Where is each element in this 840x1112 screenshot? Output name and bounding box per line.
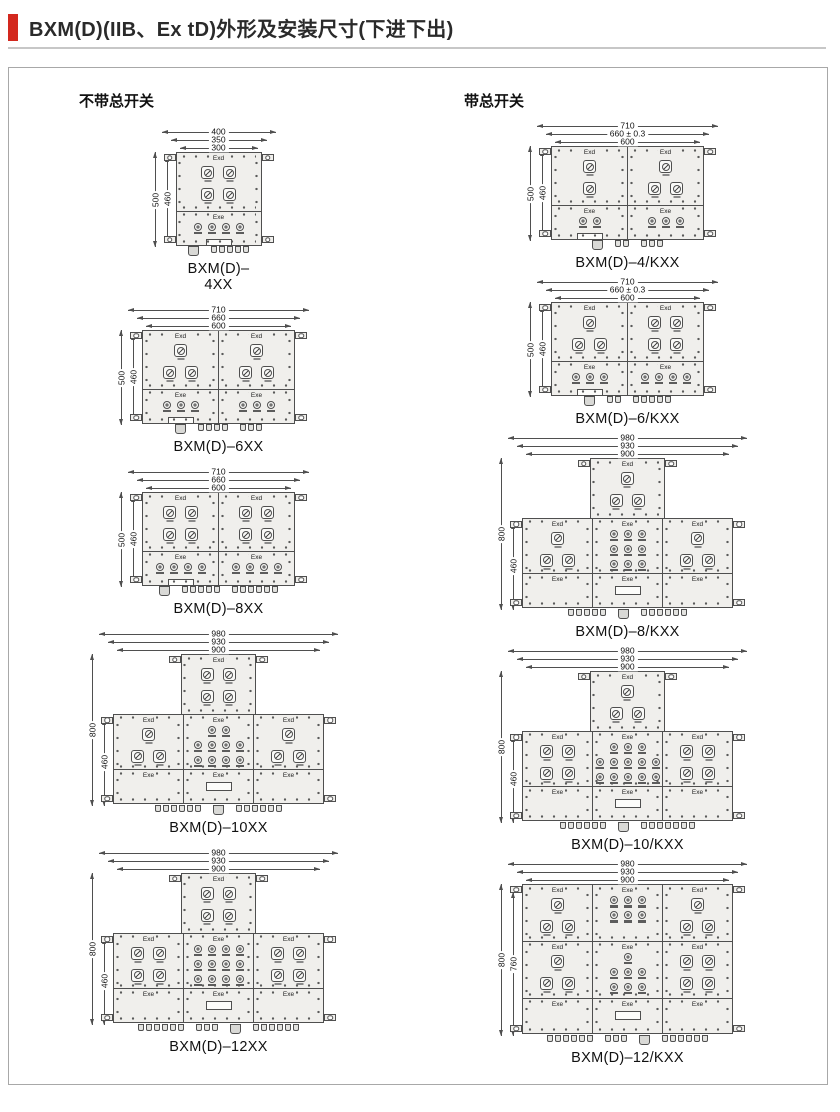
pushbutton-icon [596,758,604,766]
enclosure-drawing: ExdExdExeExdExeExeExe [522,458,733,610]
pushbutton-icon [194,975,202,983]
cable-gland-icon [261,1024,267,1031]
rotary-switch-icon [185,506,198,519]
dim-arrow-up-icon [528,146,532,152]
pushbutton-icon [208,223,216,231]
cable-gland-icon [154,1024,160,1031]
dim-arrow-left-icon [526,452,532,456]
rotary-switch-icon [680,745,693,758]
rotary-switch-icon [562,920,575,933]
dim-arrow-left-icon [99,632,105,636]
pushbutton-icon [610,530,618,538]
dimension-value: 800 [497,951,506,969]
enclosure-drawing: ExdExdExeExe [551,146,704,241]
dimension-line-horizontal: 600 [555,294,700,302]
dimension-value: 900 [617,662,637,671]
cable-gland-icon [198,586,204,593]
rotary-switch-icon [163,366,176,379]
cable-gland-icon [198,424,204,431]
flameproof-panel: Exd [522,518,593,574]
rotary-switch-icon [163,528,176,541]
dim-arrow-left-icon [128,308,134,312]
dimension-value: 500 [526,184,535,202]
panel-label: Exe [690,788,705,797]
dim-arrow-right-icon [712,280,718,284]
dimension-lines-top: 980930900 [507,860,748,884]
cable-gland-icon [214,424,220,431]
dim-arrow-left-icon [555,140,561,144]
dimension-value: 800 [497,525,506,543]
dim-arrow-left-icon [508,862,514,866]
figure: 710660600500460ExdExdExeExeBXM(D)–6XX [117,306,310,455]
panel-label: Exe [550,788,565,797]
cable-gland-icon [253,1024,259,1031]
mounting-ear [164,154,176,161]
pushbutton-icon [239,401,247,409]
pushbutton-icon [638,911,646,919]
dimension-value: 500 [117,368,126,386]
rotary-switch-icon [271,969,284,982]
pushbutton-icon [610,983,618,991]
cable-gland-icon [178,1024,184,1031]
figure-caption: BXM(D)–12XX [113,1039,324,1055]
rotary-switch-icon [223,887,236,900]
pushbutton-icon [177,401,185,409]
nameplate [206,782,232,791]
figure: 400350300500460ExdExeBXM(D)–4XX [151,128,277,293]
dim-arrow-right-icon [723,878,729,882]
dimension-lines-left: 500460 [117,492,139,587]
dim-arrow-left-icon [146,486,152,490]
column-with-main-switch: 带总开关 710660 ± 0.3600500460ExdExdExeExeBX… [418,68,827,1084]
main-cable-gland-icon [230,1024,241,1034]
dim-arrow-right-icon [314,867,320,871]
cable-glands-row [584,396,671,406]
rotary-switch-icon [670,316,683,329]
pushbutton-icon [246,563,254,571]
cable-gland-icon [171,805,177,812]
cable-gland-icon [163,805,169,812]
rotary-switch-icon [201,690,214,703]
dim-arrow-right-icon [294,316,300,320]
dim-arrow-right-icon [732,870,738,874]
flameproof-panel: Exd [662,518,733,574]
pushbutton-icon [194,756,202,764]
cable-gland-icon [248,424,254,431]
dimension-value: 460 [538,184,547,202]
cable-glands-row [188,246,249,256]
pushbutton-icon [198,563,206,571]
pushbutton-icon [638,545,646,553]
dim-arrow-left-icon [108,640,114,644]
cable-glands-row [155,805,282,815]
rotary-switch-icon [702,920,715,933]
dimension-lines-left: 800460 [88,873,110,1025]
mounting-ear [130,414,142,421]
pushbutton-icon [163,401,171,409]
pushbutton-icon [596,773,604,781]
cable-gland-icon [236,805,242,812]
cable-gland-icon [623,240,629,247]
mounting-ear [295,576,307,583]
mounting-ear [704,304,716,311]
cable-gland-icon [576,609,582,616]
cable-gland-icon [662,1035,668,1042]
pushbutton-icon [624,983,632,991]
dim-arrow-down-icon [528,235,532,241]
pushbutton-icon [274,563,282,571]
cable-glands-row [547,1035,708,1045]
mounting-ear [733,886,745,893]
flameproof-panel: Exd [590,671,666,732]
flameproof-panel: Exd [627,302,704,362]
dim-arrow-right-icon [694,296,700,300]
panel-label: Exd [141,935,156,944]
cable-gland-icon [670,1035,676,1042]
rotary-switch-icon [239,506,252,519]
dimension-line-horizontal: 900 [526,450,729,458]
cable-gland-icon [214,586,220,593]
nameplate [615,799,641,808]
panel-label: Exe [211,935,226,944]
panel-label: Exe [690,575,705,584]
cable-gland-icon [264,586,270,593]
dim-arrow-up-icon [499,458,503,464]
cable-gland-icon [665,822,671,829]
pushbutton-icon [222,975,230,983]
pushbutton-icon [236,945,244,953]
pushbutton-icon [610,773,618,781]
main-cable-gland-icon [584,396,595,406]
pushbutton-icon [579,217,587,225]
cable-gland-icon [649,609,655,616]
flameproof-panel: Exd [181,654,257,715]
rotary-switch-icon [261,528,274,541]
dim-arrow-down-icon [119,581,123,587]
figure: 980930900800460ExdExdExeExdExeExeExeBXM(… [88,630,339,836]
dimension-line-vertical: 460 [129,334,139,421]
flameproof-panel: Exd [253,933,324,989]
mounting-ear [324,1014,336,1021]
rotary-switch-icon [131,969,144,982]
rotary-switch-icon [562,977,575,990]
flameproof-panel: Exd [218,492,295,552]
rotary-switch-icon [680,920,693,933]
flameproof-panel: Exd [627,146,704,206]
pushbutton-icon [638,530,646,538]
rotary-switch-icon [702,955,715,968]
dimension-line-vertical: 500 [117,492,127,587]
pushbutton-icon [683,373,691,381]
mounting-ear [262,154,274,161]
panel-label: Exd [620,673,635,682]
figure-caption: BXM(D)–10/KXX [522,837,733,853]
dimension-lines-top: 710660600 [127,306,310,330]
dim-arrow-up-icon [90,654,94,660]
dimension-line-vertical: 460 [100,938,110,1025]
rotary-switch-icon [680,977,693,990]
mounting-ear [733,599,745,606]
pushbutton-icon [676,217,684,225]
rotary-switch-icon [670,182,683,195]
pushbutton-icon [593,217,601,225]
mounting-ear [539,386,551,393]
cable-gland-icon [219,246,225,253]
cable-gland-icon [694,1035,700,1042]
rotary-switch-icon [540,920,553,933]
dim-arrow-right-icon [252,146,258,150]
mounting-ear [510,599,522,606]
dimension-lines-top: 710660600 [127,468,310,492]
cable-gland-icon [240,424,246,431]
dim-arrow-up-icon [528,302,532,308]
cable-gland-icon [162,1024,168,1031]
panel-label: Exd [658,148,673,157]
cable-gland-icon [678,1035,684,1042]
pushbutton-icon [222,945,230,953]
mounting-ear [704,386,716,393]
panel-label: Exd [582,304,597,313]
dim-arrow-right-icon [332,851,338,855]
panel-label: Exe [582,207,597,216]
pushbutton-icon [624,953,632,961]
rotary-switch-icon [610,707,623,720]
panel-label: Exd [658,304,673,313]
panel-label: Exe [582,363,597,372]
cable-gland-icon [252,805,258,812]
dim-arrow-left-icon [108,859,114,863]
panel-label: Exd [281,935,296,944]
terminal-panel: Exe [592,518,663,574]
mounting-ear [539,304,551,311]
mounting-ear [510,521,522,528]
dimension-value: 500 [151,190,160,208]
rotary-switch-icon [271,947,284,960]
enclosure-drawing: ExdExdExeExdExeExeExe [113,873,324,1025]
dimension-line-vertical: 500 [151,152,161,247]
rotary-switch-icon [540,554,553,567]
dim-arrow-right-icon [303,308,309,312]
nameplate [615,586,641,595]
column-without-main-switch: 不带总开关 400350300500460ExdExeBXM(D)–4XX710… [9,68,418,1084]
rotary-switch-icon [174,344,187,357]
terminal-panel: Exe [253,988,324,1023]
rotary-switch-icon [621,472,634,485]
flameproof-panel: Exd [113,933,184,989]
panel-label: Exe [173,391,188,400]
page-header: BXM(D)(IIB、Ex tD)外形及安装尺寸(下进下出) [8,13,840,42]
dim-arrow-right-icon [712,124,718,128]
terminal-panel: Exe [592,998,663,1034]
cable-gland-icon [555,1035,561,1042]
dimension-lines-top: 980930900 [98,630,339,654]
cable-gland-icon [212,1024,218,1031]
main-cable-gland-icon [213,805,224,815]
flameproof-panel: Exd [522,884,593,942]
pushbutton-icon [641,373,649,381]
terminal-panel: Exe [522,998,593,1034]
dimension-line-vertical: 460 [129,496,139,583]
dim-arrow-left-icon [117,867,123,871]
cable-gland-icon [256,586,262,593]
rotary-switch-icon [271,750,284,763]
mounting-ear [578,673,590,680]
cable-gland-icon [607,396,613,403]
cable-gland-icon [641,396,647,403]
mounting-ear [539,148,551,155]
pushbutton-icon [610,896,618,904]
rotary-switch-icon [540,745,553,758]
dimension-value: 900 [208,645,228,654]
panel-label: Exe [550,575,565,584]
terminal-panel: Exe [142,551,219,586]
pushbutton-icon [610,560,618,568]
dim-arrow-left-icon [546,288,552,292]
dim-arrow-left-icon [517,870,523,874]
dim-arrow-right-icon [723,452,729,456]
rotary-switch-icon [540,977,553,990]
flameproof-panel: Exd [551,302,628,362]
cable-gland-icon [244,805,250,812]
rotary-switch-icon [293,969,306,982]
cable-gland-icon [584,822,590,829]
cable-gland-icon [576,822,582,829]
main-cable-gland-icon [188,246,199,256]
rotary-switch-icon [223,909,236,922]
pushbutton-icon [586,373,594,381]
rotary-switch-icon [293,750,306,763]
dim-arrow-left-icon [555,296,561,300]
rotary-switch-icon [239,528,252,541]
dimension-value: 800 [88,721,97,739]
panel-label: Exe [550,1000,565,1009]
dimension-line-vertical: 460 [538,306,548,393]
cable-gland-icon [621,1035,627,1042]
cable-gland-icon [681,822,687,829]
dim-arrow-left-icon [99,851,105,855]
figure-caption: BXM(D)–4/KXX [551,255,704,271]
dim-arrow-left-icon [180,146,186,150]
dim-arrow-down-icon [499,604,503,610]
flameproof-panel: Exd [176,152,262,212]
cable-gland-icon [686,1035,692,1042]
panel-label: Exe [620,943,635,952]
cable-gland-icon [615,240,621,247]
nameplate [206,1001,232,1010]
dimension-line-vertical: 760 [509,892,519,1036]
dim-arrow-left-icon [517,657,523,661]
dim-arrow-down-icon [499,817,503,823]
terminal-panel: Exe [183,714,254,770]
mounting-ear [130,494,142,501]
enclosure-drawing: ExdExdExeExe [142,330,295,425]
rotary-switch-icon [610,494,623,507]
flameproof-panel: Exd [142,330,219,390]
terminal-panel: Exe [142,389,219,424]
cable-gland-icon [560,822,566,829]
rotary-switch-icon [185,528,198,541]
dim-arrow-left-icon [546,132,552,136]
terminal-panel: Exe [218,551,295,586]
dim-arrow-left-icon [517,444,523,448]
page-title: BXM(D)(IIB、Ex tD)外形及安装尺寸(下进下出) [29,13,454,42]
cable-gland-icon [649,240,655,247]
rotary-switch-icon [691,898,704,911]
dimension-lines-left: 800760 [497,884,519,1036]
nameplate [577,389,603,396]
dimension-value: 460 [509,557,518,575]
terminal-panel: Exe [183,933,254,989]
dimension-value: 460 [538,340,547,358]
dimension-line-vertical: 800 [497,671,507,823]
mounting-ear [295,494,307,501]
dim-arrow-right-icon [732,657,738,661]
figure-caption: BXM(D)–6/KXX [551,411,704,427]
cable-gland-icon [170,1024,176,1031]
dim-arrow-left-icon [128,470,134,474]
cable-gland-icon [547,1035,553,1042]
main-cable-gland-icon [618,609,629,619]
dimension-line-vertical: 800 [88,873,98,1025]
cable-gland-icon [268,805,274,812]
cable-glands-row [592,240,663,250]
dim-arrow-right-icon [285,486,291,490]
panel-label: Exd [550,520,565,529]
panel-label: Exe [211,990,226,999]
dimension-value: 760 [509,955,518,973]
cable-gland-icon [182,586,188,593]
cable-gland-icon [615,396,621,403]
panel-label: Exe [690,1000,705,1009]
cable-gland-icon [673,609,679,616]
cable-gland-icon [204,1024,210,1031]
panel-label: Exe [281,771,296,780]
mounting-ear [130,576,142,583]
panel-label: Exe [620,733,635,742]
terminal-panel: Exe [253,769,324,804]
pushbutton-icon [638,983,646,991]
dim-arrow-down-icon [528,391,532,397]
panel-label: Exd [550,943,565,952]
mounting-ear [510,886,522,893]
terminal-panel: Exe [662,786,733,821]
panel-label: Exe [620,886,635,895]
pushbutton-icon [600,373,608,381]
cable-gland-icon [260,805,266,812]
figure-caption: BXM(D)–6XX [142,439,295,455]
dim-arrow-left-icon [117,648,123,652]
dim-arrow-up-icon [153,152,157,158]
dimension-lines-left: 500460 [526,302,548,397]
dim-arrow-left-icon [162,130,168,134]
panel-label: Exe [141,990,156,999]
dimension-line-horizontal: 900 [117,865,320,873]
cable-gland-icon [702,1035,708,1042]
cable-gland-icon [243,246,249,253]
cable-gland-icon [240,586,246,593]
dimension-line-vertical: 800 [497,458,507,610]
dim-arrow-right-icon [741,649,747,653]
pushbutton-icon [194,960,202,968]
figure: 710660600500460ExdExdExeExeBXM(D)–8XX [117,468,310,617]
pushbutton-icon [638,896,646,904]
main-cable-gland-icon [175,424,186,434]
cable-gland-icon [641,240,647,247]
rotary-switch-icon [680,955,693,968]
dimension-lines-left: 800460 [497,458,519,610]
cable-gland-icon [657,396,663,403]
rotary-switch-icon [702,745,715,758]
